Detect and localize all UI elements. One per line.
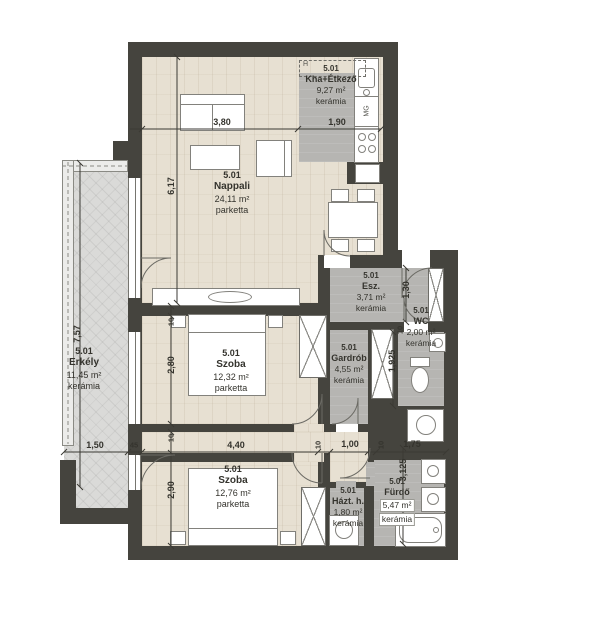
room-floor-type: kerámia bbox=[332, 518, 364, 529]
dim-wall-10: 10 bbox=[167, 318, 176, 326]
room-area: 11,45 m² bbox=[67, 370, 102, 381]
room-unit: 5.01 bbox=[356, 271, 386, 281]
room-unit: 5.01 bbox=[379, 477, 415, 487]
erkely-label: 5.01 Erkély 11,45 m² kerámia bbox=[67, 346, 102, 392]
room-unit: 5.01 bbox=[332, 486, 364, 496]
room-name: WC bbox=[406, 316, 436, 327]
room-floor-type: kerámia bbox=[305, 96, 356, 107]
floor-plan: 5.01 Nappali 24,11 m² parketta 5.01 Kha+… bbox=[0, 0, 600, 618]
gardrob-label: 5.01 Gardrób 4,55 m² kerámia bbox=[331, 343, 367, 386]
dim-szoba2-width: 4,40 bbox=[227, 440, 245, 450]
dim-szoba2-height: 2,90 bbox=[166, 481, 176, 499]
dim-wall-45: 45 bbox=[130, 441, 138, 450]
dim-wc-height: 1,925 bbox=[387, 350, 397, 373]
nappali-label: 5.01 Nappali 24,11 m² parketta bbox=[214, 170, 250, 216]
room-floor-type: kerámia bbox=[379, 513, 415, 526]
room-name: Szoba bbox=[213, 359, 249, 372]
room-area: 1,80 m² bbox=[332, 507, 364, 518]
kitchen-label: 5.01 Kha+Étkező 9,27 m² kerámia bbox=[305, 64, 356, 107]
room-name: Nappali bbox=[214, 181, 250, 194]
room-area: 12,76 m² bbox=[215, 488, 251, 499]
dim-szoba1-height: 2,80 bbox=[166, 356, 176, 374]
wc-label: 5.01 WC 2,00 m² kerámia bbox=[406, 306, 436, 349]
room-unit: 5.01 bbox=[67, 346, 102, 357]
room-name: Esz. bbox=[356, 281, 386, 292]
room-floor-type: parketta bbox=[215, 499, 251, 510]
dimension-and-door-overlay bbox=[0, 0, 600, 618]
furdo-label: 5.01 Fürdő 5,47 m² kerámia bbox=[379, 477, 415, 527]
dim-erkely-width: 1,50 bbox=[86, 440, 104, 450]
room-area: 2,00 m² bbox=[406, 327, 436, 338]
room-area: 4,55 m² bbox=[331, 364, 367, 375]
szoba1-label: 5.01 Szoba 12,32 m² parketta bbox=[213, 348, 249, 394]
room-unit: 5.01 bbox=[214, 170, 250, 181]
room-area: 12,32 m² bbox=[213, 372, 249, 383]
room-unit: 5.01 bbox=[305, 64, 356, 74]
room-floor-type: kerámia bbox=[331, 375, 367, 386]
room-area: 5,47 m² bbox=[380, 499, 415, 512]
dim-kitchen-width: 1,90 bbox=[328, 117, 346, 127]
szoba2-label: 5.01 Szoba 12,76 m² parketta bbox=[215, 464, 251, 510]
room-unit: 5.01 bbox=[213, 348, 249, 359]
room-floor-type: kerámia bbox=[67, 381, 102, 392]
room-name: Gardrób bbox=[331, 353, 367, 364]
room-name: Fürdő bbox=[379, 487, 415, 498]
room-name: Erkély bbox=[67, 357, 102, 370]
dim-wall-10: 10 bbox=[314, 441, 323, 449]
room-floor-type: parketta bbox=[213, 383, 249, 394]
room-name: Szoba bbox=[215, 475, 251, 488]
dim-erkely-height: 7,57 bbox=[72, 325, 82, 343]
room-unit: 5.01 bbox=[215, 464, 251, 475]
room-area: 9,27 m² bbox=[305, 85, 356, 96]
room-area: 24,11 m² bbox=[214, 194, 250, 205]
dim-wall-10: 10 bbox=[377, 441, 386, 449]
dishwasher-label: MG bbox=[364, 105, 371, 116]
dim-wall-10: 10 bbox=[167, 434, 176, 442]
dim-nappali-width: 3,80 bbox=[213, 117, 231, 127]
room-area: 3,71 m² bbox=[356, 292, 386, 303]
dim-nappali-height: 6,17 bbox=[166, 177, 176, 195]
room-floor-type: parketta bbox=[214, 205, 250, 216]
room-unit: 5.01 bbox=[406, 306, 436, 316]
hazt-label: 5.01 Házt. h. 1,80 m² kerámia bbox=[332, 486, 364, 529]
room-unit: 5.01 bbox=[331, 343, 367, 353]
dim-corridor-width: 1,00 bbox=[341, 439, 359, 449]
room-name: Házt. h. bbox=[332, 496, 364, 507]
room-floor-type: kerámia bbox=[356, 303, 386, 314]
esz-label: 5.01 Esz. 3,71 m² kerámia bbox=[356, 271, 386, 314]
room-floor-type: kerámia bbox=[406, 338, 436, 349]
dim-wall-10: 10 bbox=[396, 326, 405, 334]
dim-furdo-width: 1,75 bbox=[403, 439, 421, 449]
dim-esz-height: 1,30 bbox=[401, 281, 411, 299]
room-name: Kha+Étkező bbox=[305, 74, 356, 85]
